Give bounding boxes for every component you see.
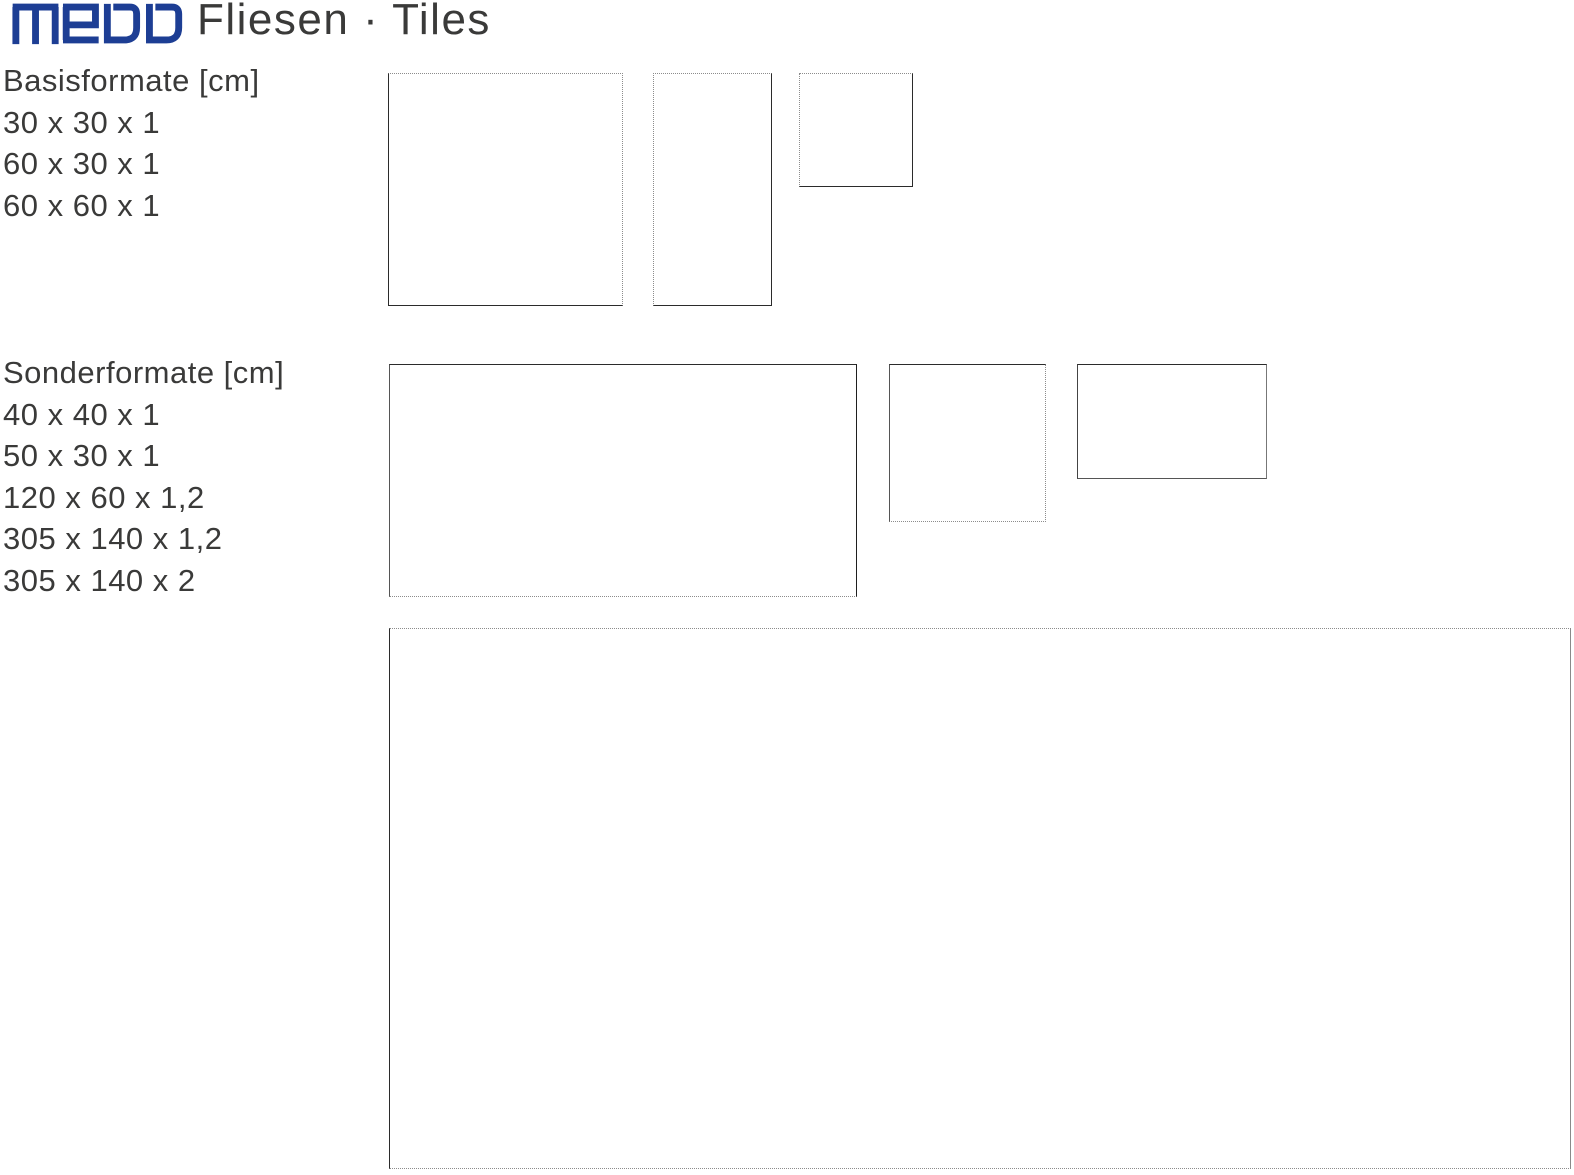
- tile-60x30: [653, 73, 772, 306]
- size-line: 305 x 140 x 1,2: [3, 518, 284, 560]
- tile-120x60: [389, 364, 857, 597]
- basisformate-heading: Basisformate [cm]: [3, 60, 260, 102]
- size-line: 120 x 60 x 1,2: [3, 477, 284, 519]
- medo-logo: medo: [3, 2, 187, 45]
- tile-60x60: [388, 73, 623, 306]
- sonderformate-heading: Sonderformate [cm]: [3, 352, 284, 394]
- size-line: 30 x 30 x 1: [3, 102, 260, 144]
- medo-logo-icon: [3, 2, 187, 45]
- size-line: 60 x 30 x 1: [3, 143, 260, 185]
- size-line: 305 x 140 x 2: [3, 560, 284, 602]
- tile-40x40: [889, 364, 1046, 522]
- sonderformate-block: Sonderformate [cm] 40 x 40 x 1 50 x 30 x…: [3, 352, 284, 601]
- size-line: 50 x 30 x 1: [3, 435, 284, 477]
- tile-30x30: [799, 73, 913, 187]
- tile-305x140: [389, 628, 1571, 1169]
- size-line: 60 x 60 x 1: [3, 185, 260, 227]
- basisformate-block: Basisformate [cm] 30 x 30 x 1 60 x 30 x …: [3, 60, 260, 226]
- tile-50x30: [1077, 364, 1267, 479]
- page-title: Fliesen · Tiles: [197, 0, 491, 46]
- size-line: 40 x 40 x 1: [3, 394, 284, 436]
